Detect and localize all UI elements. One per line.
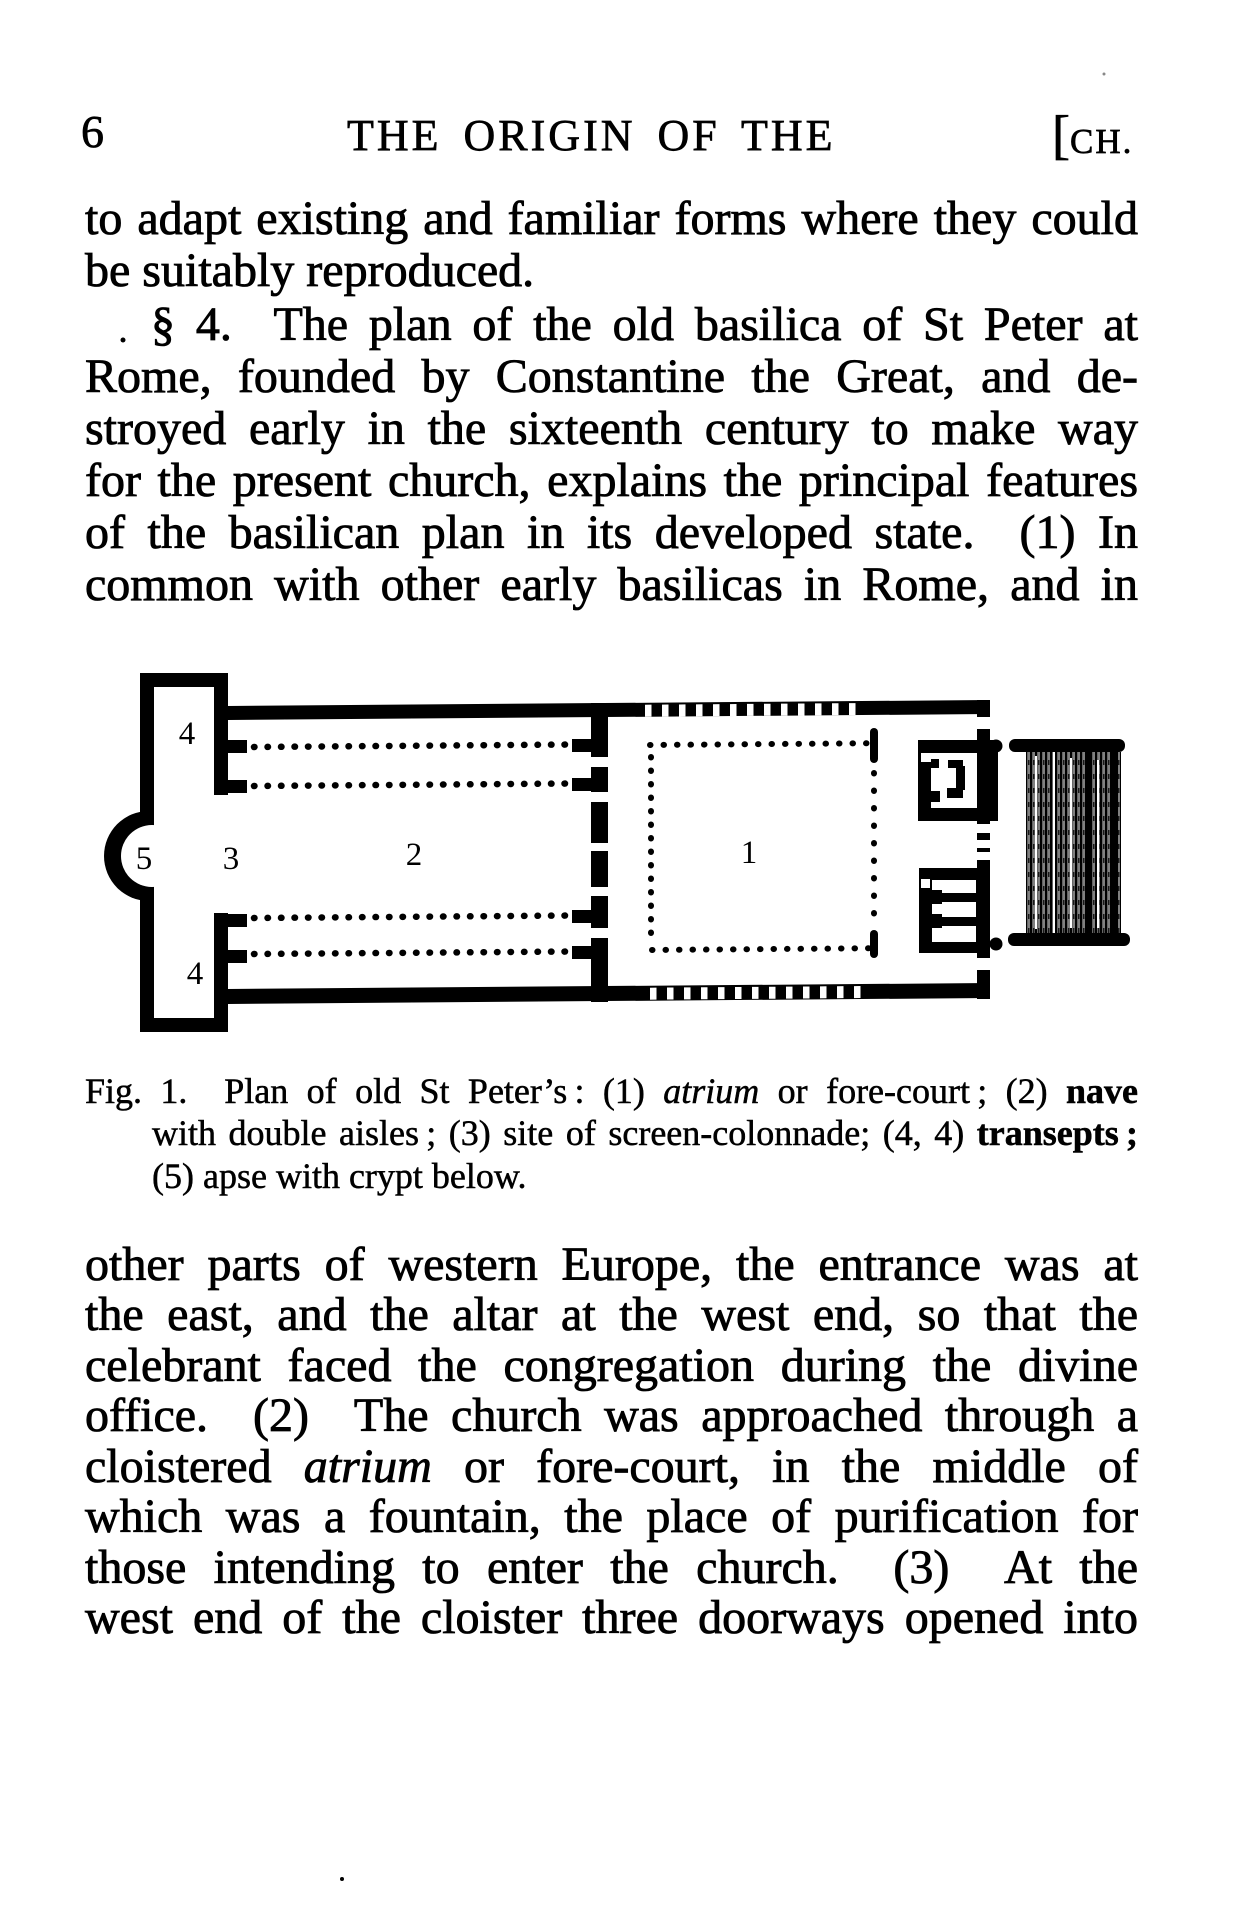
svg-text:1: 1 — [741, 835, 758, 871]
svg-text:4: 4 — [187, 956, 204, 992]
svg-text:4: 4 — [179, 716, 196, 752]
svg-text:2: 2 — [406, 837, 423, 873]
svg-text:3: 3 — [223, 841, 240, 877]
svg-text:5: 5 — [136, 841, 153, 877]
